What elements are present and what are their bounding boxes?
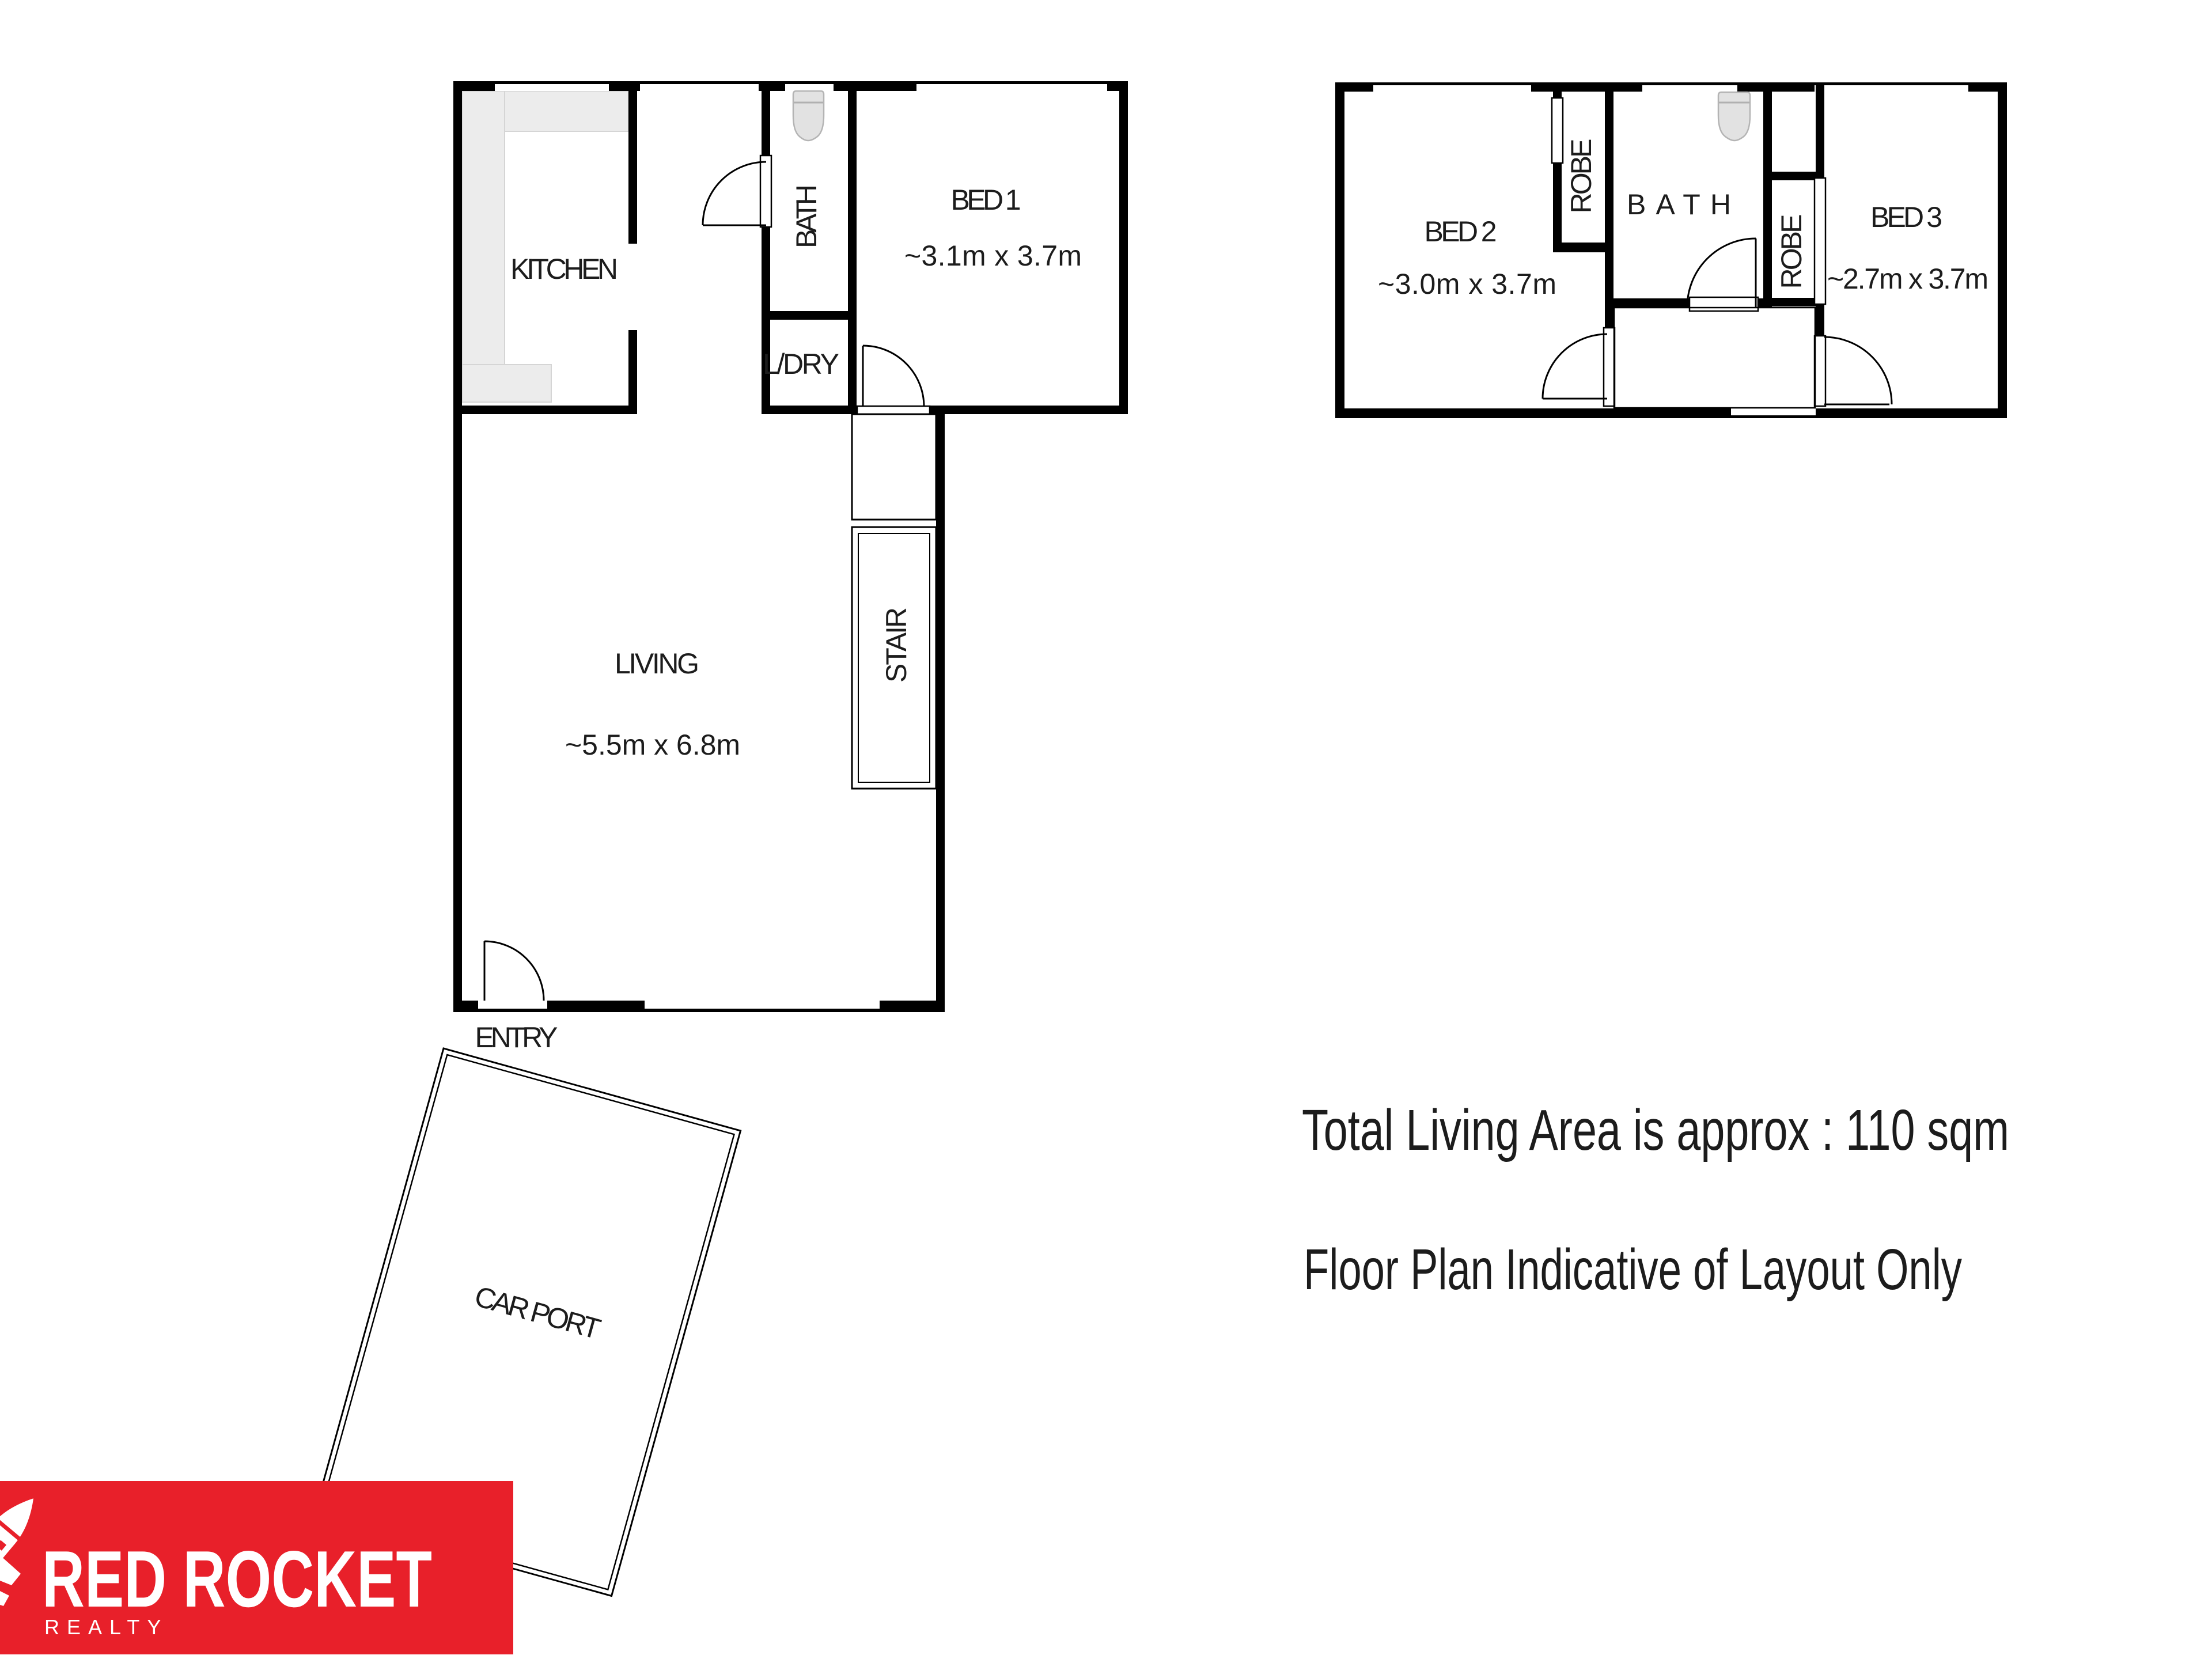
svg-text:RED ROCKET: RED ROCKET <box>42 1535 432 1624</box>
svg-text:Total Living Area is approx :: Total Living Area is approx : 110 sqm <box>1302 1098 2009 1162</box>
svg-text:BED 3: BED 3 <box>1870 201 1943 233</box>
svg-text:~5.5m x 6.8m: ~5.5m x 6.8m <box>565 729 740 761</box>
svg-text:LIVING: LIVING <box>615 647 700 680</box>
svg-text:Floor Plan Indicative of Layou: Floor Plan Indicative of Layout Only <box>1304 1237 1962 1302</box>
svg-text:~3.0m x 3.7m: ~3.0m x 3.7m <box>1378 268 1556 300</box>
svg-text:ENTRY: ENTRY <box>475 1021 559 1054</box>
svg-text:KITCHEN: KITCHEN <box>510 253 619 285</box>
svg-text:L/DRY: L/DRY <box>763 348 840 380</box>
svg-text:~3.1m x 3.7m: ~3.1m x 3.7m <box>904 240 1082 272</box>
svg-text:STAIR: STAIR <box>880 607 912 683</box>
svg-text:BED 2: BED 2 <box>1425 215 1498 248</box>
svg-text:~2.7m x 3.7m: ~2.7m x 3.7m <box>1827 263 1988 295</box>
svg-text:ROBE: ROBE <box>1775 214 1808 289</box>
svg-text:BED 1: BED 1 <box>951 184 1022 216</box>
svg-text:REALTY: REALTY <box>44 1615 168 1639</box>
svg-text:BATH: BATH <box>790 184 823 248</box>
svg-text:ROBE: ROBE <box>1565 138 1597 214</box>
